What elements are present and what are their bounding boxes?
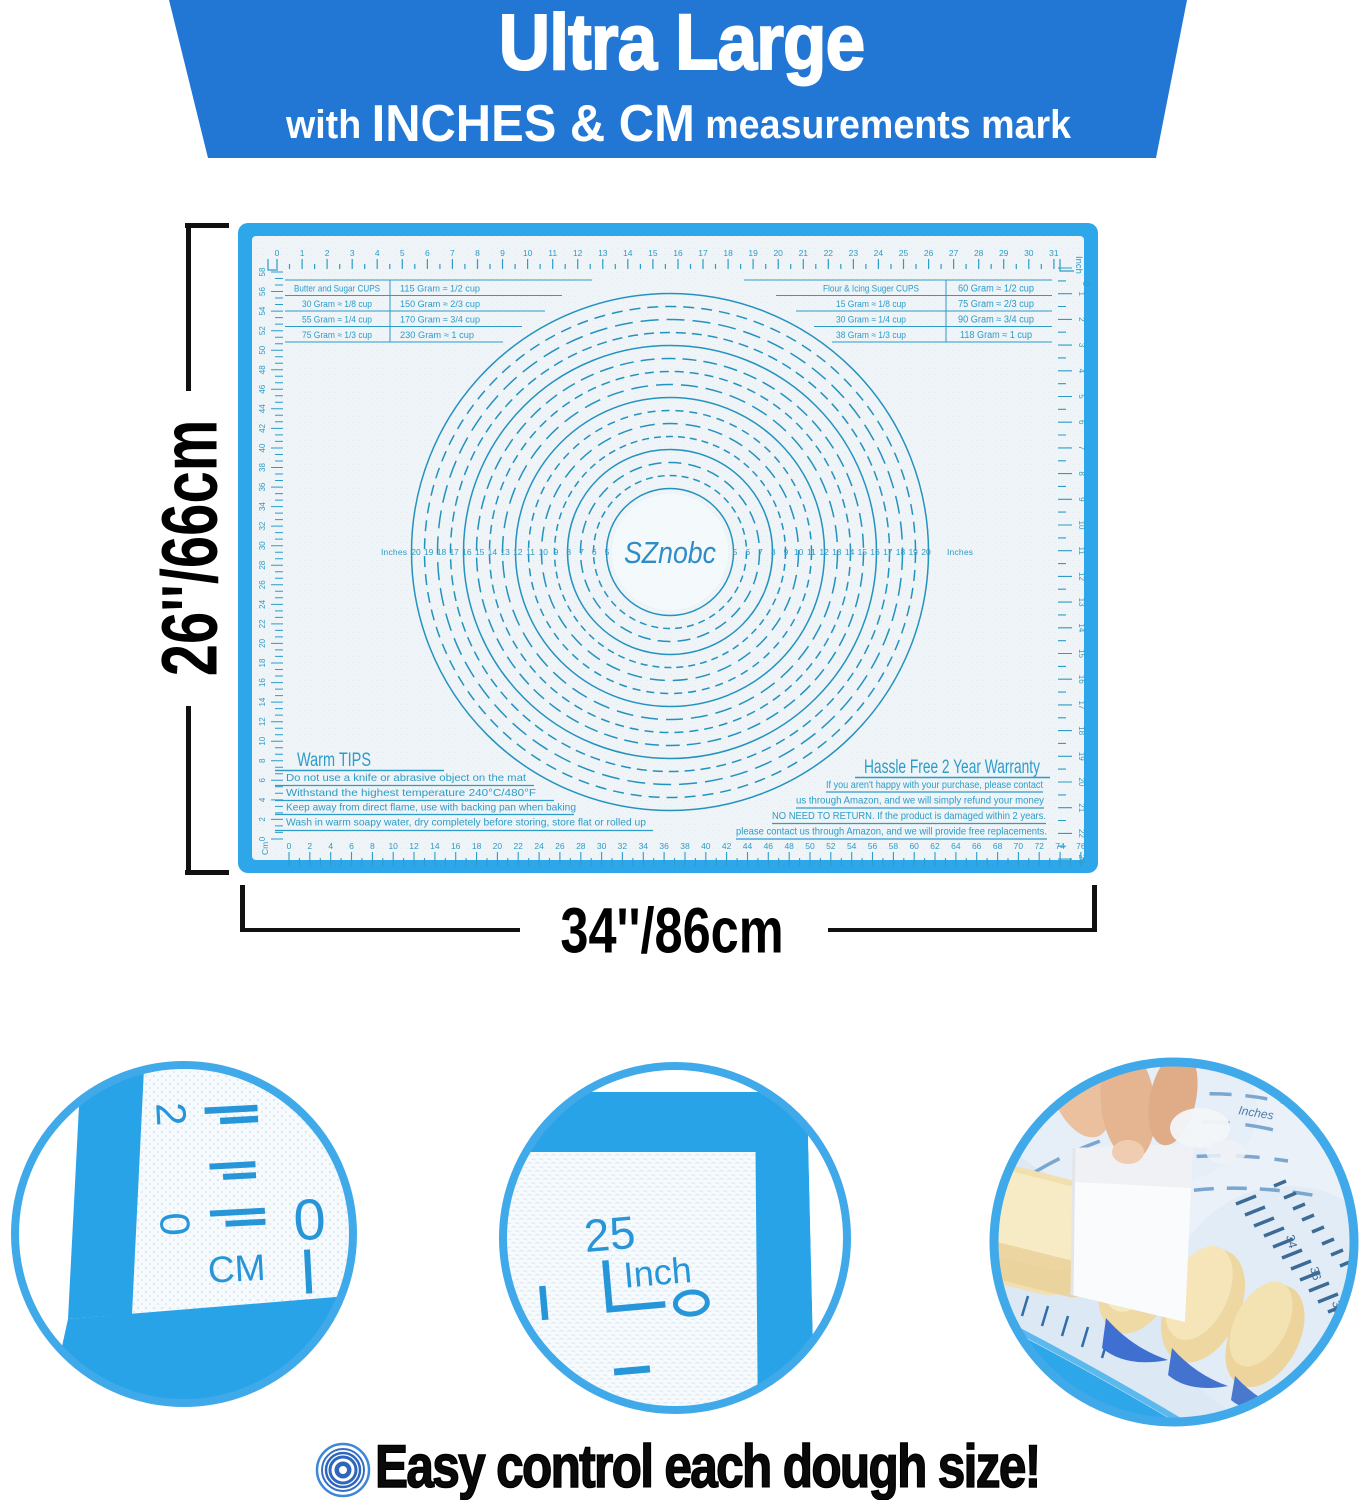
svg-text:8: 8 [1077,471,1086,476]
svg-text:12: 12 [258,717,267,726]
svg-text:23: 23 [849,248,859,258]
svg-text:5: 5 [400,248,405,258]
svg-text:7: 7 [450,248,455,258]
svg-text:6: 6 [425,248,430,258]
svg-text:75 Gram ≈ 2/3 cup: 75 Gram ≈ 2/3 cup [958,299,1034,310]
svg-text:18: 18 [472,841,482,851]
svg-text:8: 8 [475,248,480,258]
svg-text:3: 3 [350,248,355,258]
svg-text:Inch: Inch [1073,256,1084,274]
svg-text:us through Amazon, and we wil: us through Amazon, and we will simply re… [796,796,1045,807]
svg-text:6: 6 [1077,420,1086,425]
svg-text:38: 38 [258,463,267,472]
svg-text:22: 22 [824,248,834,258]
svg-text:If you aren't happy with your: If you aren't happy with your purchase, … [826,780,1043,791]
svg-text:66: 66 [972,841,982,851]
svg-text:11: 11 [526,547,535,557]
svg-text:52: 52 [258,326,267,335]
svg-text:0: 0 [151,1211,199,1237]
svg-text:29: 29 [999,248,1009,258]
svg-text:NO NEED TO RETURN. If the prod: NO NEED TO RETURN. If the product is dam… [772,811,1046,822]
svg-text:12: 12 [409,841,419,851]
svg-text:170 Gram ≈ 3/4 cup: 170 Gram ≈ 3/4 cup [400,315,480,325]
svg-text:10: 10 [388,841,398,851]
svg-text:150 Gram ≈ 2/3 cup: 150 Gram ≈ 2/3 cup [400,299,480,309]
svg-text:48: 48 [784,841,794,851]
svg-text:62: 62 [930,841,940,851]
svg-text:5: 5 [1077,394,1086,399]
svg-text:2: 2 [147,1101,195,1127]
svg-text:13: 13 [1077,598,1086,607]
svg-text:72: 72 [1034,841,1044,851]
svg-text:8: 8 [258,758,267,763]
svg-text:11: 11 [548,248,557,258]
svg-text:9: 9 [1077,497,1086,502]
svg-text:10: 10 [523,248,533,258]
svg-text:14: 14 [258,697,267,706]
svg-text:50: 50 [805,841,815,851]
svg-text:22: 22 [1077,829,1086,838]
svg-text:10: 10 [1077,521,1086,530]
svg-text:18: 18 [723,248,733,258]
svg-text:46: 46 [258,384,267,393]
svg-text:2: 2 [258,817,267,822]
svg-text:40: 40 [701,841,711,851]
svg-text:5: 5 [605,547,610,557]
svg-text:Butter and Sugar CUPS: Butter and Sugar CUPS [294,284,380,294]
svg-text:118 Gram ≈ 1 cup: 118 Gram ≈ 1 cup [960,330,1032,341]
svg-text:2: 2 [325,248,330,258]
svg-text:76: 76 [1076,841,1086,851]
svg-text:75 Gram ≈ 1/3 cup: 75 Gram ≈ 1/3 cup [302,330,372,340]
svg-text:20: 20 [493,841,503,851]
svg-text:8: 8 [566,547,571,557]
svg-text:58: 58 [258,267,267,276]
svg-text:7: 7 [758,547,763,557]
svg-text:10: 10 [258,736,267,745]
svg-text:15: 15 [1077,649,1086,658]
svg-text:4: 4 [1077,369,1086,374]
svg-text:22: 22 [513,841,523,851]
svg-text:30: 30 [1024,248,1034,258]
svg-text:64: 64 [951,841,961,851]
svg-text:13: 13 [500,547,510,557]
svg-text:16: 16 [462,547,472,557]
svg-text:Inches: Inches [381,547,407,557]
svg-text:54: 54 [258,306,267,315]
svg-text:Keep away from direct flame, u: Keep away from direct flame, use with ba… [286,803,576,814]
svg-text:30 Gram ≈ 1/4 cup: 30 Gram ≈ 1/4 cup [836,315,906,325]
svg-text:4: 4 [328,841,333,851]
svg-text:19: 19 [748,248,758,258]
svg-text:26: 26 [258,580,267,589]
svg-text:13: 13 [832,547,842,557]
svg-text:5: 5 [733,547,738,557]
svg-text:15 Gram ≈ 1/8 cup: 15 Gram ≈ 1/8 cup [836,299,906,309]
svg-text:54: 54 [847,841,857,851]
svg-text:20: 20 [921,547,931,557]
svg-text:68: 68 [993,841,1003,851]
svg-text:19: 19 [908,547,918,557]
svg-text:1: 1 [1077,291,1086,296]
svg-text:38 Gram ≈ 1/3 cup: 38 Gram ≈ 1/3 cup [836,330,906,340]
svg-text:50: 50 [258,345,267,354]
svg-text:46: 46 [764,841,774,851]
svg-text:19: 19 [424,547,434,557]
svg-text:14: 14 [430,841,440,851]
svg-text:17: 17 [449,547,459,557]
svg-text:44: 44 [743,841,753,851]
svg-text:52: 52 [826,841,836,851]
svg-text:21: 21 [799,248,809,258]
svg-text:14: 14 [488,547,498,557]
svg-text:18: 18 [1077,726,1086,735]
svg-text:42: 42 [722,841,732,851]
svg-text:19: 19 [1077,752,1086,761]
svg-text:17: 17 [698,248,708,258]
svg-text:Cm: Cm [260,842,270,855]
svg-text:0: 0 [1080,281,1091,286]
svg-text:16: 16 [1077,675,1086,684]
svg-text:30: 30 [258,541,267,550]
svg-text:30: 30 [597,841,607,851]
svg-text:56: 56 [868,841,878,851]
svg-text:15: 15 [858,547,868,557]
svg-text:0: 0 [275,248,280,258]
svg-text:Hassle Free 2 Year Warranty: Hassle Free 2 Year Warranty [864,756,1040,778]
svg-text:8: 8 [771,547,776,557]
svg-text:12: 12 [1077,572,1086,581]
svg-text:24: 24 [874,248,884,258]
svg-text:28: 28 [576,841,586,851]
svg-text:15: 15 [475,547,485,557]
svg-text:26: 26 [924,248,934,258]
svg-text:20: 20 [773,248,783,258]
svg-text:6: 6 [349,841,354,851]
svg-text:0: 0 [292,1187,328,1254]
svg-text:58: 58 [889,841,899,851]
svg-text:2: 2 [307,841,312,851]
svg-text:74: 74 [1055,841,1065,851]
svg-text:27: 27 [949,248,959,258]
svg-text:16: 16 [258,678,267,687]
svg-text:60: 60 [909,841,919,851]
svg-text:10: 10 [539,547,549,557]
svg-text:18: 18 [258,658,267,667]
svg-text:16: 16 [451,841,461,851]
svg-text:20: 20 [411,547,421,557]
svg-text:Wash in warm soapy water, dry: Wash in warm soapy water, dry completely… [286,818,646,829]
svg-text:28: 28 [974,248,984,258]
svg-text:32: 32 [618,841,628,851]
svg-text:9: 9 [500,248,505,258]
svg-text:23: 23 [1077,855,1086,864]
svg-text:4: 4 [258,797,267,802]
svg-text:1: 1 [300,248,305,258]
svg-text:11: 11 [1077,547,1086,556]
svg-text:25: 25 [899,248,909,258]
svg-text:0: 0 [287,841,292,851]
svg-text:SZnobc: SZnobc [624,535,716,570]
svg-text:Do not use a knife or abrasive: Do not use a knife or abrasive object on… [286,773,526,784]
svg-text:16: 16 [870,547,880,557]
svg-text:CM: CM [207,1247,267,1291]
svg-text:28: 28 [258,560,267,569]
svg-text:Inch: Inch [622,1249,693,1296]
svg-text:21: 21 [1077,803,1086,812]
svg-text:14: 14 [1077,623,1086,632]
svg-text:44: 44 [258,404,267,413]
svg-text:12: 12 [513,547,523,557]
svg-text:7: 7 [1077,446,1086,451]
svg-text:230 Gram ≈ 1 cup: 230 Gram ≈ 1 cup [400,330,474,340]
svg-text:38: 38 [680,841,690,851]
svg-text:6: 6 [745,547,750,557]
svg-text:7: 7 [579,547,584,557]
svg-text:6: 6 [592,547,597,557]
svg-text:10: 10 [794,547,804,557]
svg-text:14: 14 [623,248,633,258]
svg-text:17: 17 [883,547,893,557]
svg-text:36: 36 [258,482,267,491]
svg-text:12: 12 [819,547,829,557]
svg-text:20: 20 [258,638,267,647]
svg-text:Withstand the highest temperat: Withstand the highest temperature 240°C/… [286,788,536,799]
svg-text:90 Gram ≈ 3/4 cup: 90 Gram ≈ 3/4 cup [958,315,1034,326]
svg-text:24: 24 [534,841,544,851]
svg-text:30 Gram ≈ 1/8 cup: 30 Gram ≈ 1/8 cup [302,299,372,309]
svg-text:Inches: Inches [947,547,973,557]
svg-text:70: 70 [1014,841,1024,851]
svg-text:8: 8 [370,841,375,851]
svg-text:20: 20 [1077,778,1086,787]
svg-text:48: 48 [258,365,267,374]
svg-text:34: 34 [639,841,649,851]
svg-text:55 Gram ≈ 1/4 cup: 55 Gram ≈ 1/4 cup [302,315,372,325]
svg-text:13: 13 [598,248,608,258]
svg-text:60 Gram ≈ 1/2 cup: 60 Gram ≈ 1/2 cup [958,284,1034,295]
svg-text:40: 40 [1347,1333,1360,1350]
svg-text:32: 32 [258,521,267,530]
svg-text:4: 4 [375,248,380,258]
svg-text:Warm TIPS: Warm TIPS [297,750,371,771]
svg-text:17: 17 [1077,700,1086,709]
svg-text:34: 34 [258,502,267,511]
svg-text:56: 56 [258,287,267,296]
svg-text:16: 16 [673,248,683,258]
svg-text:115 Gram ≈ 1/2 cup: 115 Gram ≈ 1/2 cup [400,284,480,294]
svg-text:24: 24 [258,599,267,608]
svg-text:3: 3 [1077,343,1086,348]
svg-text:2: 2 [1077,317,1086,322]
svg-text:26: 26 [555,841,565,851]
svg-text:15: 15 [648,248,658,258]
svg-text:11: 11 [807,547,816,557]
svg-text:40: 40 [258,443,267,452]
svg-text:6: 6 [258,778,267,783]
svg-text:22: 22 [258,619,267,628]
svg-text:14: 14 [845,547,855,557]
svg-text:9: 9 [784,547,789,557]
svg-text:18: 18 [437,547,447,557]
svg-text:please contact us through Amaz: please contact us through Amazon, and we… [736,827,1047,838]
svg-text:31: 31 [1049,248,1059,258]
svg-text:42: 42 [258,423,267,432]
svg-text:9: 9 [554,547,559,557]
svg-text:36: 36 [659,841,669,851]
svg-text:12: 12 [573,248,583,258]
svg-text:18: 18 [896,547,906,557]
svg-text:0: 0 [258,836,267,841]
svg-text:Flour & Icing Suger CUPS: Flour & Icing Suger CUPS [823,284,919,294]
